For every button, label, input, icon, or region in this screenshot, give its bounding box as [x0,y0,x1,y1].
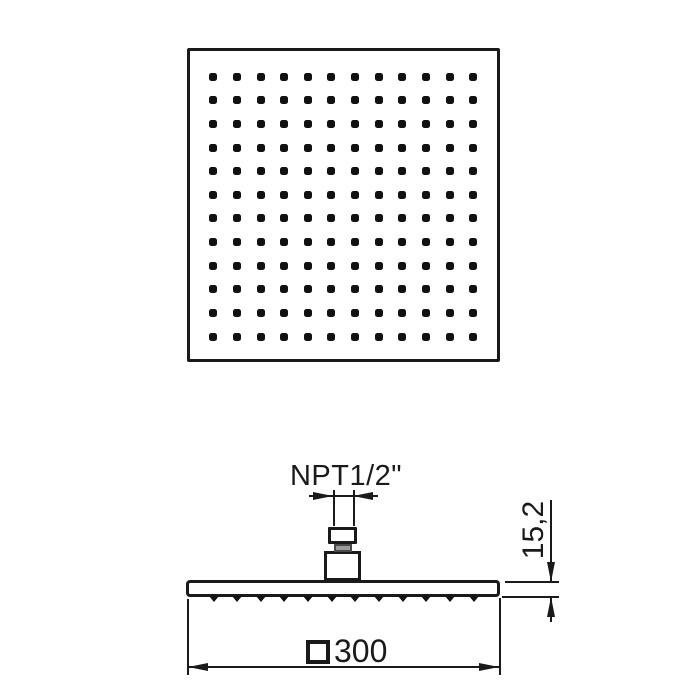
nozzle-tip-icon [303,596,313,602]
nozzle-tip-icon [209,596,219,602]
nozzle-tip-icon [421,596,431,602]
shower-head-technical-drawing: NPT1/2" 15,2 300 [0,0,700,700]
nozzle-tip-icon [398,596,408,602]
thickness-dimension-label: 15,2 [520,500,548,560]
nozzle-tip-icon [350,596,360,602]
nozzle-tip-icon [279,596,289,602]
nozzle-tip-icon [232,596,242,602]
nozzle-tip-icon [374,596,384,602]
nozzle-tip-icon [469,596,479,602]
arrowhead-icon [479,663,499,671]
nozzle-tip-icon [327,596,337,602]
nozzle-tip-icon [445,596,455,602]
nozzle-tip-icon [256,596,266,602]
arrowhead-icon [547,562,555,582]
arrowhead-icon [188,663,208,671]
square-dimension-icon [306,640,330,664]
width-dimension-label: 300 [334,636,414,666]
nozzle-row [0,0,700,700]
arrowhead-icon [547,597,555,617]
